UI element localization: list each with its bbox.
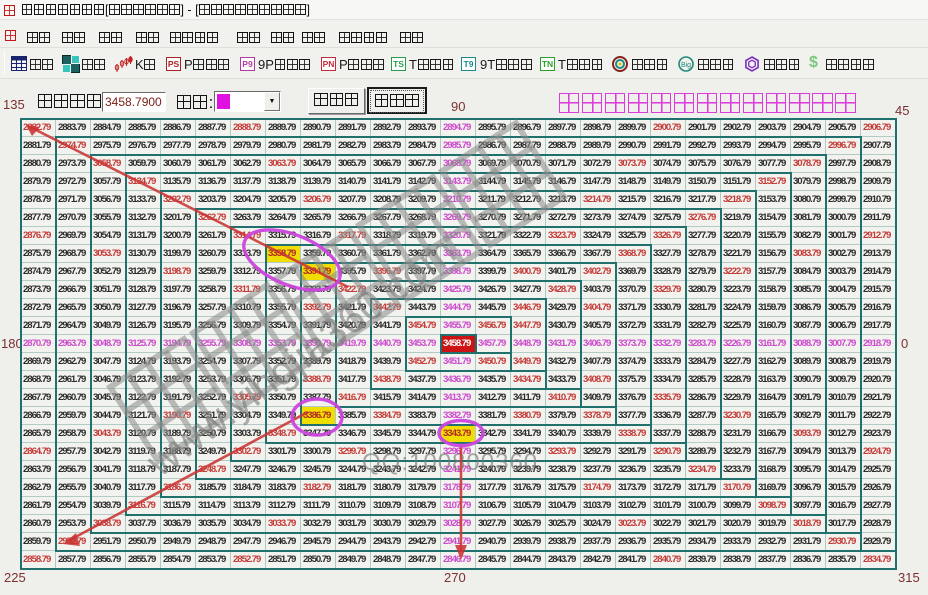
svg-text:QQ:100800360: QQ:100800360 bbox=[362, 449, 538, 476]
